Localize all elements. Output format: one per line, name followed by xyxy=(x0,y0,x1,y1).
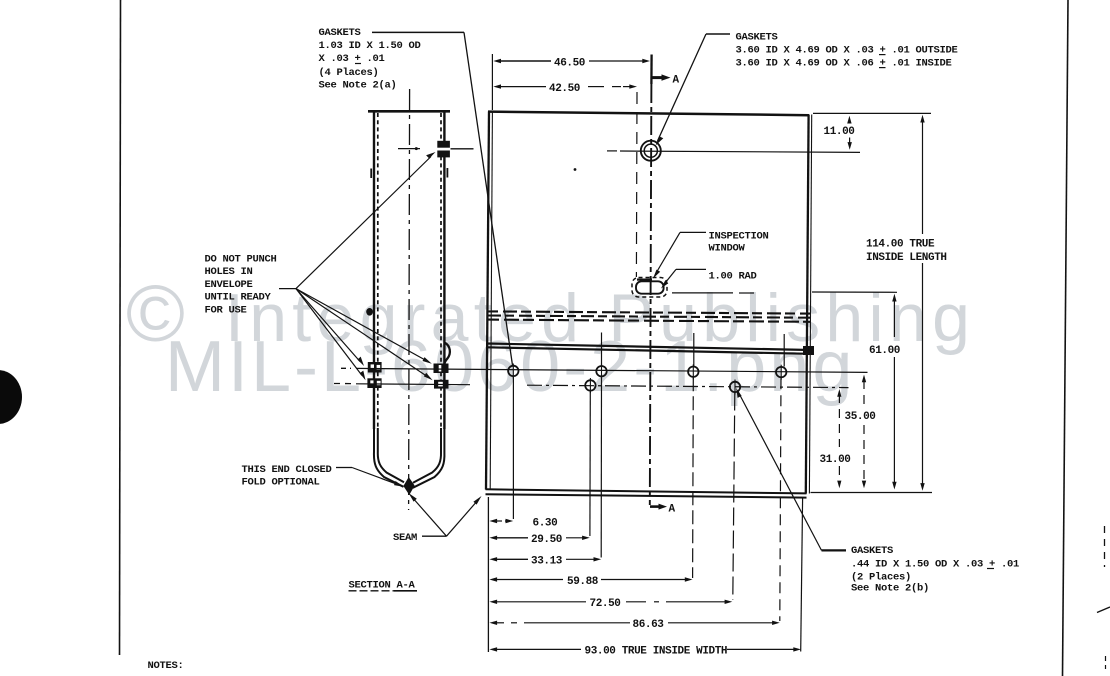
svg-text:ENVELOPE: ENVELOPE xyxy=(205,279,253,291)
svg-text:86.63: 86.63 xyxy=(633,619,665,631)
svg-text:SEAM: SEAM xyxy=(393,532,417,544)
svg-text:93.00 TRUE INSIDE WIDTH: 93.00 TRUE INSIDE WIDTH xyxy=(585,646,728,658)
svg-text:SECTION A-A: SECTION A-A xyxy=(349,579,416,591)
svg-text:FOR USE: FOR USE xyxy=(205,304,247,316)
svg-text:31.00: 31.00 xyxy=(820,454,851,466)
svg-text:A: A xyxy=(669,504,676,516)
svg-text:46.50: 46.50 xyxy=(554,57,585,69)
svg-text:1.03 ID X 1.50 OD: 1.03 ID X 1.50 OD xyxy=(319,40,421,52)
svg-text:GASKETS: GASKETS xyxy=(319,27,361,39)
svg-text:FOLD OPTIONAL: FOLD OPTIONAL xyxy=(242,477,320,489)
svg-text:3.60 ID X 4.69 OD X .06 + .01: 3.60 ID X 4.69 OD X .06 + .01 INSIDE xyxy=(736,58,952,70)
svg-text:(4 Places): (4 Places) xyxy=(319,67,379,79)
svg-text:29.50: 29.50 xyxy=(531,534,562,546)
svg-text:1.00 RAD: 1.00 RAD xyxy=(709,271,757,283)
svg-text:6.30: 6.30 xyxy=(533,517,558,529)
svg-text:WINDOW: WINDOW xyxy=(709,243,746,255)
svg-text:UNTIL READY: UNTIL READY xyxy=(205,292,272,304)
svg-text:42.50: 42.50 xyxy=(549,83,580,95)
svg-text:GASKETS: GASKETS xyxy=(851,545,893,557)
svg-text:72.50: 72.50 xyxy=(590,598,621,610)
svg-text:INSPECTION: INSPECTION xyxy=(709,230,769,242)
svg-text:114.00 TRUE: 114.00 TRUE xyxy=(866,239,935,251)
svg-text:61.00: 61.00 xyxy=(869,345,900,357)
svg-text:See Note 2(a): See Note 2(a) xyxy=(319,80,397,92)
svg-text:THIS END CLOSED: THIS END CLOSED xyxy=(242,464,332,476)
svg-text:35.00: 35.00 xyxy=(845,411,876,423)
svg-text:A: A xyxy=(673,75,680,87)
svg-text:GASKETS: GASKETS xyxy=(736,31,778,43)
svg-text:See Note 2(b): See Note 2(b) xyxy=(851,583,929,595)
svg-text:INSIDE LENGTH: INSIDE LENGTH xyxy=(866,252,947,264)
svg-text:3.60 ID X 4.69 OD X .03 + .01: 3.60 ID X 4.69 OD X .03 + .01 OUTSIDE xyxy=(736,45,958,57)
svg-text:11.00: 11.00 xyxy=(824,126,855,138)
svg-text:HOLES IN: HOLES IN xyxy=(205,266,253,278)
svg-text:X .03 + .01: X .03 + .01 xyxy=(319,53,385,65)
svg-text:NOTES:: NOTES: xyxy=(148,660,184,672)
svg-text:33.13: 33.13 xyxy=(531,556,563,568)
svg-text:59.88: 59.88 xyxy=(567,576,599,588)
svg-text:DO NOT PUNCH: DO NOT PUNCH xyxy=(205,254,277,266)
svg-text:(2 Places): (2 Places) xyxy=(851,571,911,583)
